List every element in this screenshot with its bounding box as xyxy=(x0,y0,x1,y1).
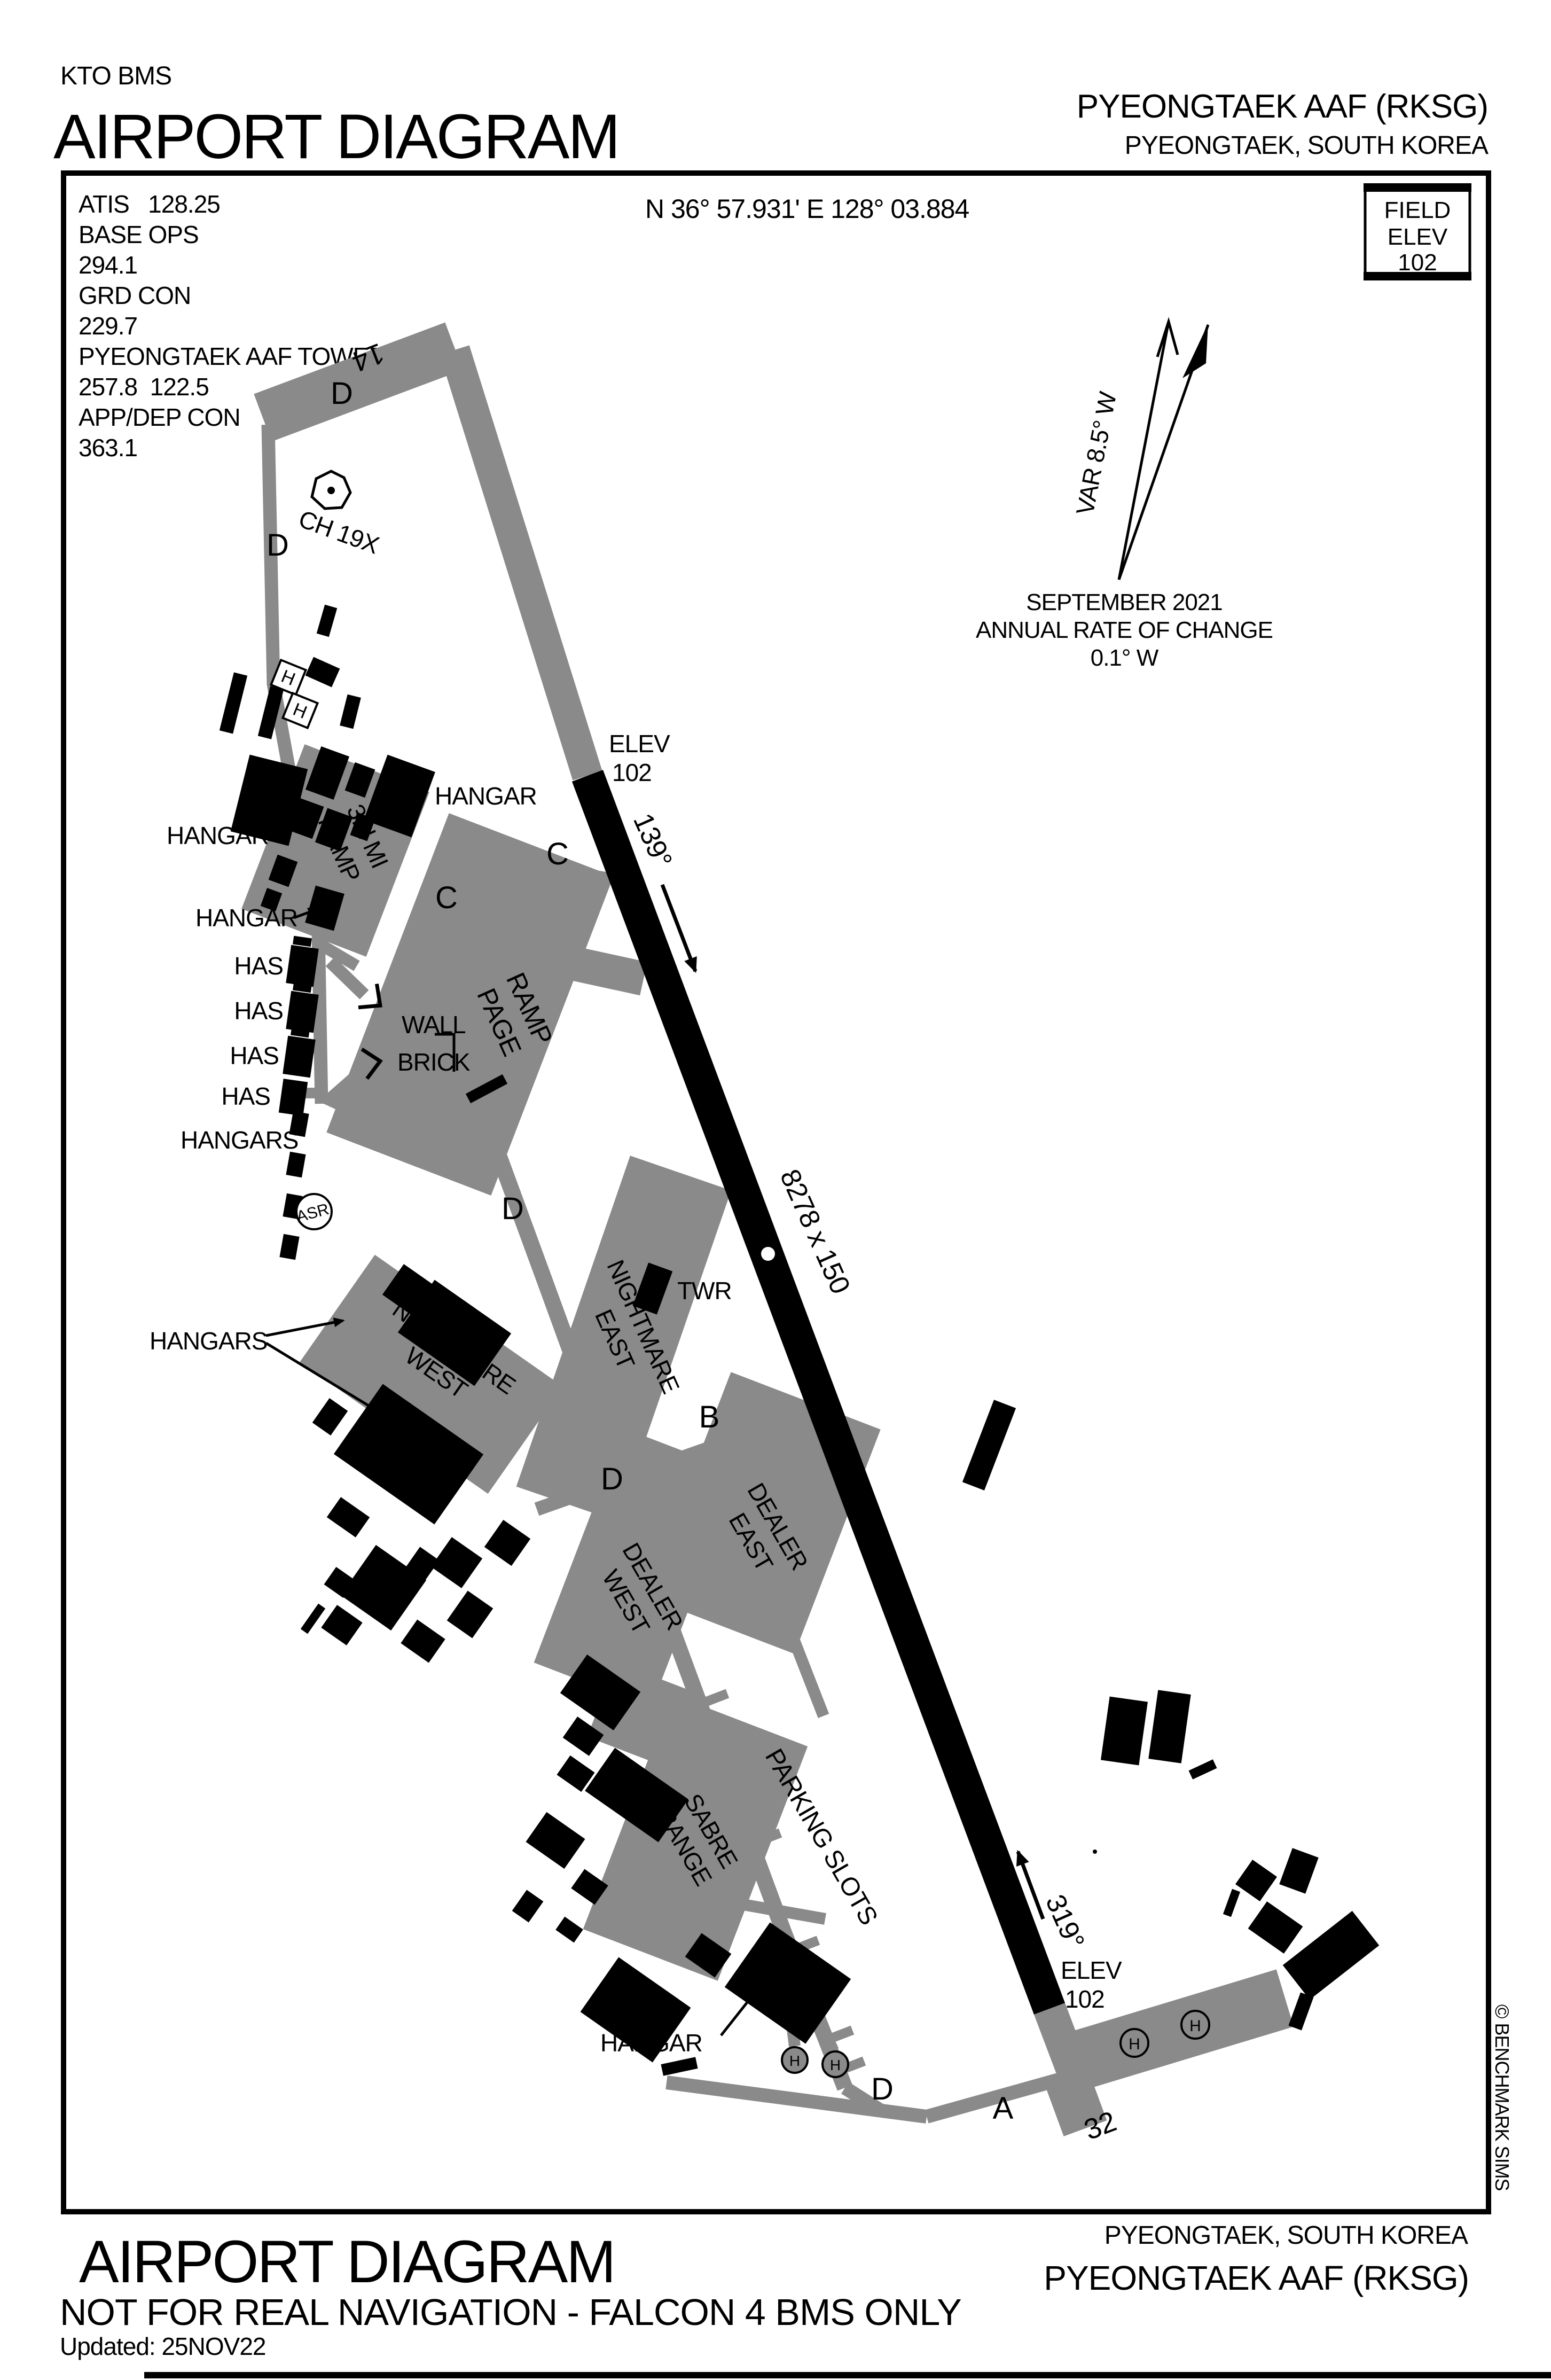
comms-line: 229.7 xyxy=(79,312,137,340)
building xyxy=(279,1079,308,1116)
brick-label: BRICK xyxy=(397,1048,471,1076)
helipad-circle: H xyxy=(822,2051,848,2077)
true-north-arrowhead xyxy=(1157,322,1178,357)
taxiway-label-d: D xyxy=(502,1191,524,1226)
elev-14-label: ELEV xyxy=(609,730,670,758)
variation-label: VAR 8.5° W xyxy=(1071,389,1122,517)
building xyxy=(725,1922,851,2043)
asr-symbol: ASR xyxy=(294,1194,332,1229)
runway-overrun-14 xyxy=(455,350,587,776)
taxiway-label-d: D xyxy=(871,2072,894,2106)
tacan-symbol xyxy=(312,471,350,509)
page-title: AIRPORT DIAGRAM xyxy=(53,102,619,172)
hangars-label: HANGARS xyxy=(181,1126,298,1154)
field-elev-value: 102 xyxy=(1398,249,1437,276)
building xyxy=(431,1537,482,1588)
taxiway-label-b: B xyxy=(699,1400,720,1434)
helipad-h: H xyxy=(1129,2035,1140,2053)
elev-32-label: ELEV xyxy=(1061,1956,1122,1984)
footer-bottom-bar xyxy=(144,2372,1551,2378)
building xyxy=(401,1620,445,1663)
building xyxy=(1148,1690,1190,1763)
building xyxy=(1288,1993,1313,2031)
hangar-label: HANGAR xyxy=(195,904,297,932)
tower-label: TWR xyxy=(677,1277,732,1305)
building xyxy=(312,1398,348,1435)
runway-distance-dot xyxy=(761,1247,775,1261)
building xyxy=(317,605,338,637)
comms-line: BASE OPS xyxy=(79,221,199,248)
building xyxy=(340,695,361,729)
helipad-circle: H xyxy=(1181,2011,1209,2039)
building xyxy=(1279,1848,1318,1893)
field-elev-label1: FIELD xyxy=(1384,197,1451,223)
building xyxy=(962,1400,1016,1491)
footer-disclaimer: NOT FOR REAL NAVIGATION - FALCON 4 BMS O… xyxy=(60,2291,961,2333)
taxiway-label-a: A xyxy=(993,2091,1014,2126)
comms-line: 294.1 xyxy=(79,251,137,279)
building xyxy=(286,1152,305,1178)
taxiway-label-d: D xyxy=(267,528,289,563)
building xyxy=(305,657,340,688)
building xyxy=(555,1917,583,1943)
building xyxy=(1101,1697,1148,1766)
building xyxy=(279,1234,299,1260)
helipad-circle: H xyxy=(782,2047,808,2073)
footer-title: AIRPORT DIAGRAM xyxy=(79,2228,615,2295)
comms-line: ATIS 128.25 xyxy=(79,190,220,218)
building xyxy=(286,945,319,987)
building xyxy=(1189,1759,1217,1779)
hangar-label: HANGAR xyxy=(167,822,269,849)
helipad-circle: H xyxy=(1121,2029,1148,2057)
has-label: HAS xyxy=(230,1042,279,1070)
helipad-diamond: H xyxy=(283,693,317,728)
has-label: HAS xyxy=(234,952,283,980)
helipad-h: H xyxy=(830,2057,841,2073)
hangars-label: HANGARS xyxy=(150,1327,267,1355)
footer-airport-name: PYEONGTAEK AAF (RKSG) xyxy=(1044,2259,1469,2297)
header-airport-location: PYEONGTAEK, SOUTH KOREA xyxy=(1125,131,1489,160)
taxiway-label-c: C xyxy=(546,837,569,871)
building xyxy=(447,1591,493,1638)
field-coordinates: N 36° 57.931' E 128° 03.884 xyxy=(645,194,969,224)
comms-line: GRD CON xyxy=(79,282,191,309)
building xyxy=(661,2057,698,2075)
building xyxy=(327,1497,370,1538)
helipad-h: H xyxy=(1189,2017,1201,2035)
building xyxy=(512,1890,544,1922)
program-label: KTO BMS xyxy=(60,62,171,90)
variation-date: SEPTEMBER 2021 xyxy=(1026,589,1223,615)
building xyxy=(1223,1889,1240,1917)
field-elev-label2: ELEV xyxy=(1388,224,1448,250)
airport-diagram-canvas: KTO BMS AIRPORT DIAGRAM PYEONGTAEK AAF (… xyxy=(0,0,1551,2380)
footer-airport-location: PYEONGTAEK, SOUTH KOREA xyxy=(1104,2221,1468,2250)
stray-dot xyxy=(1093,1850,1097,1854)
building xyxy=(286,991,319,1033)
building xyxy=(321,1605,362,1645)
variation-rate-line1: ANNUAL RATE OF CHANGE xyxy=(976,617,1273,643)
building xyxy=(484,1520,530,1566)
taxiway-label-d: D xyxy=(331,376,353,411)
tacan-channel-label: CH 19X xyxy=(295,505,383,559)
comms-line: APP/DEP CON xyxy=(79,403,240,431)
elev-32-value: 102 xyxy=(1065,1985,1104,2013)
tacan-dot xyxy=(327,487,335,494)
building xyxy=(293,936,312,947)
building xyxy=(220,673,247,734)
building xyxy=(526,1812,585,1869)
copyright-label: © BENCHMARK SIMS xyxy=(1491,2004,1513,2191)
comms-block: ATIS 128.25 BASE OPS 294.1 GRD CON 229.7… xyxy=(79,190,386,462)
hangar-label: HANGAR xyxy=(600,2029,702,2057)
header-airport-name: PYEONGTAEK AAF (RKSG) xyxy=(1077,88,1488,125)
field-elev-frame-top xyxy=(1364,183,1471,192)
hangar-label: HANGAR xyxy=(435,782,537,810)
building xyxy=(301,1604,325,1634)
footer-updated: Updated: 25NOV22 xyxy=(60,2332,266,2360)
comms-line: 257.8 122.5 xyxy=(79,373,209,401)
taxiway-label-d: D xyxy=(601,1462,623,1496)
true-north-arrow xyxy=(1119,322,1169,580)
elev-14-value: 102 xyxy=(612,759,652,786)
building xyxy=(283,1036,316,1078)
helipad-h: H xyxy=(789,2053,800,2069)
runway-heading-32: 319° xyxy=(1039,1890,1090,1953)
wall-label: WALL xyxy=(402,1011,466,1039)
building xyxy=(1235,1860,1277,1901)
variation-arrows xyxy=(1119,322,1208,580)
has-label: HAS xyxy=(234,997,283,1025)
magnetic-north-arrowhead xyxy=(1182,324,1208,378)
has-label: HAS xyxy=(221,1082,270,1110)
taxiway-label-c: C xyxy=(435,880,458,915)
comms-line: 363.1 xyxy=(79,434,137,462)
field-elev-box: FIELD ELEV 102 xyxy=(1364,183,1471,280)
building xyxy=(1248,1901,1303,1954)
variation-rate-line2: 0.1° W xyxy=(1091,645,1159,671)
